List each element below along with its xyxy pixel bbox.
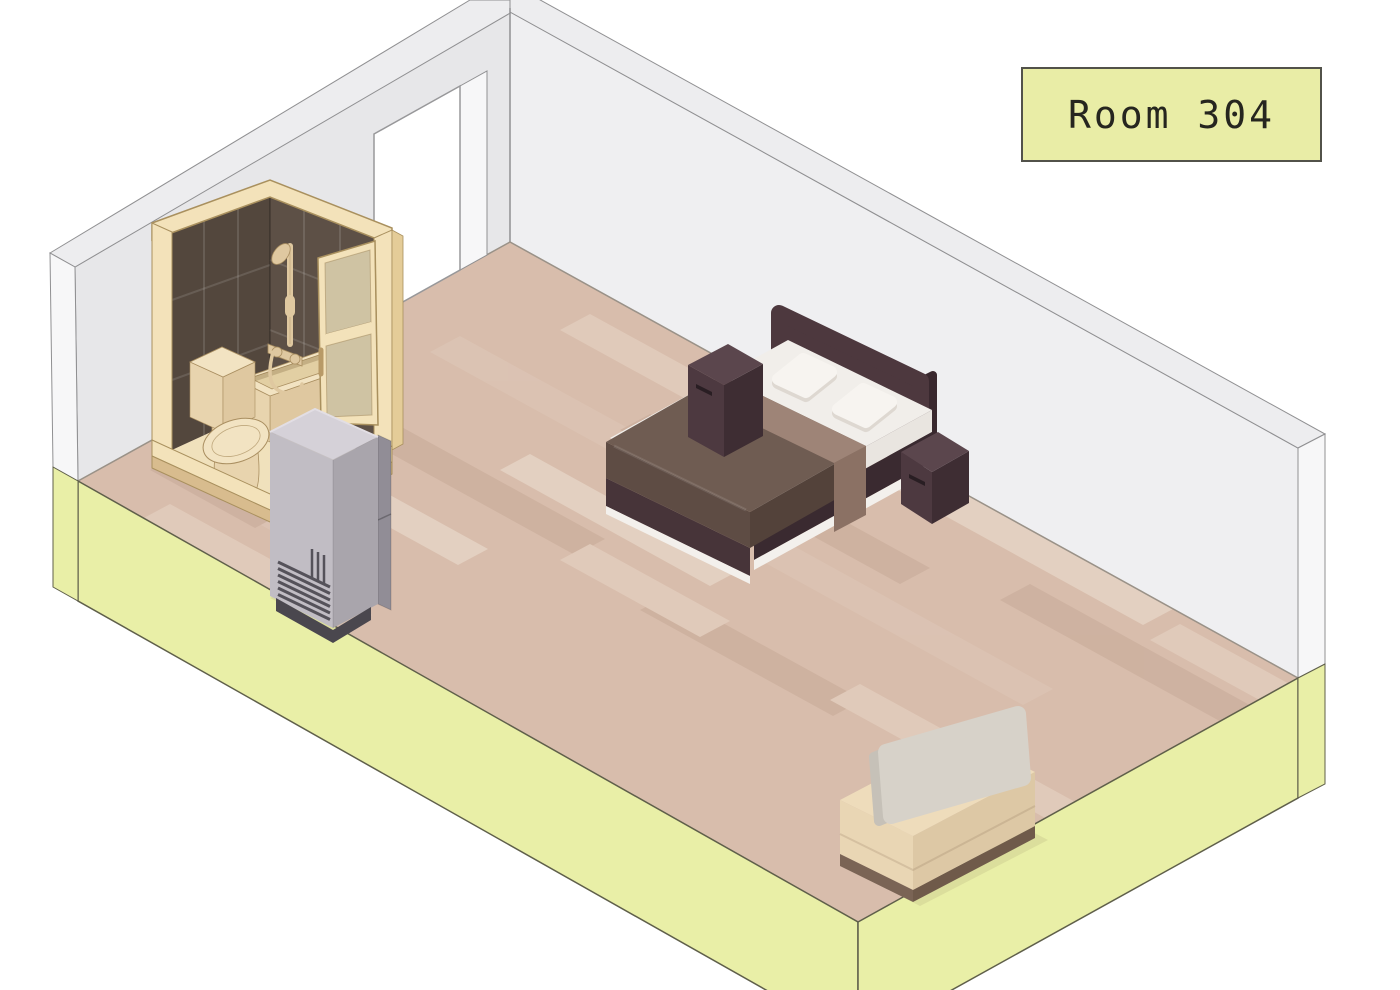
band-end-east <box>1298 664 1325 798</box>
isometric-room-illustration: Room 304 <box>0 0 1400 990</box>
nightstand-left <box>688 344 763 457</box>
room-label-text: Room 304 <box>1068 93 1275 137</box>
pod-pillar-left <box>152 223 172 450</box>
door-glass-top <box>325 250 371 334</box>
pod-side-sliver <box>392 230 403 450</box>
room-label: Room 304 <box>1021 67 1322 162</box>
mixer-knob-right <box>290 354 300 364</box>
band-end-west <box>53 467 78 601</box>
wall-end-west <box>50 253 78 481</box>
fridge-side <box>333 437 378 628</box>
wall-end-east <box>1298 434 1325 678</box>
door-glass-bottom <box>326 334 372 417</box>
fridge-rear-panel <box>378 435 391 610</box>
doorway-reveal <box>460 71 487 270</box>
glass-door <box>318 241 378 425</box>
